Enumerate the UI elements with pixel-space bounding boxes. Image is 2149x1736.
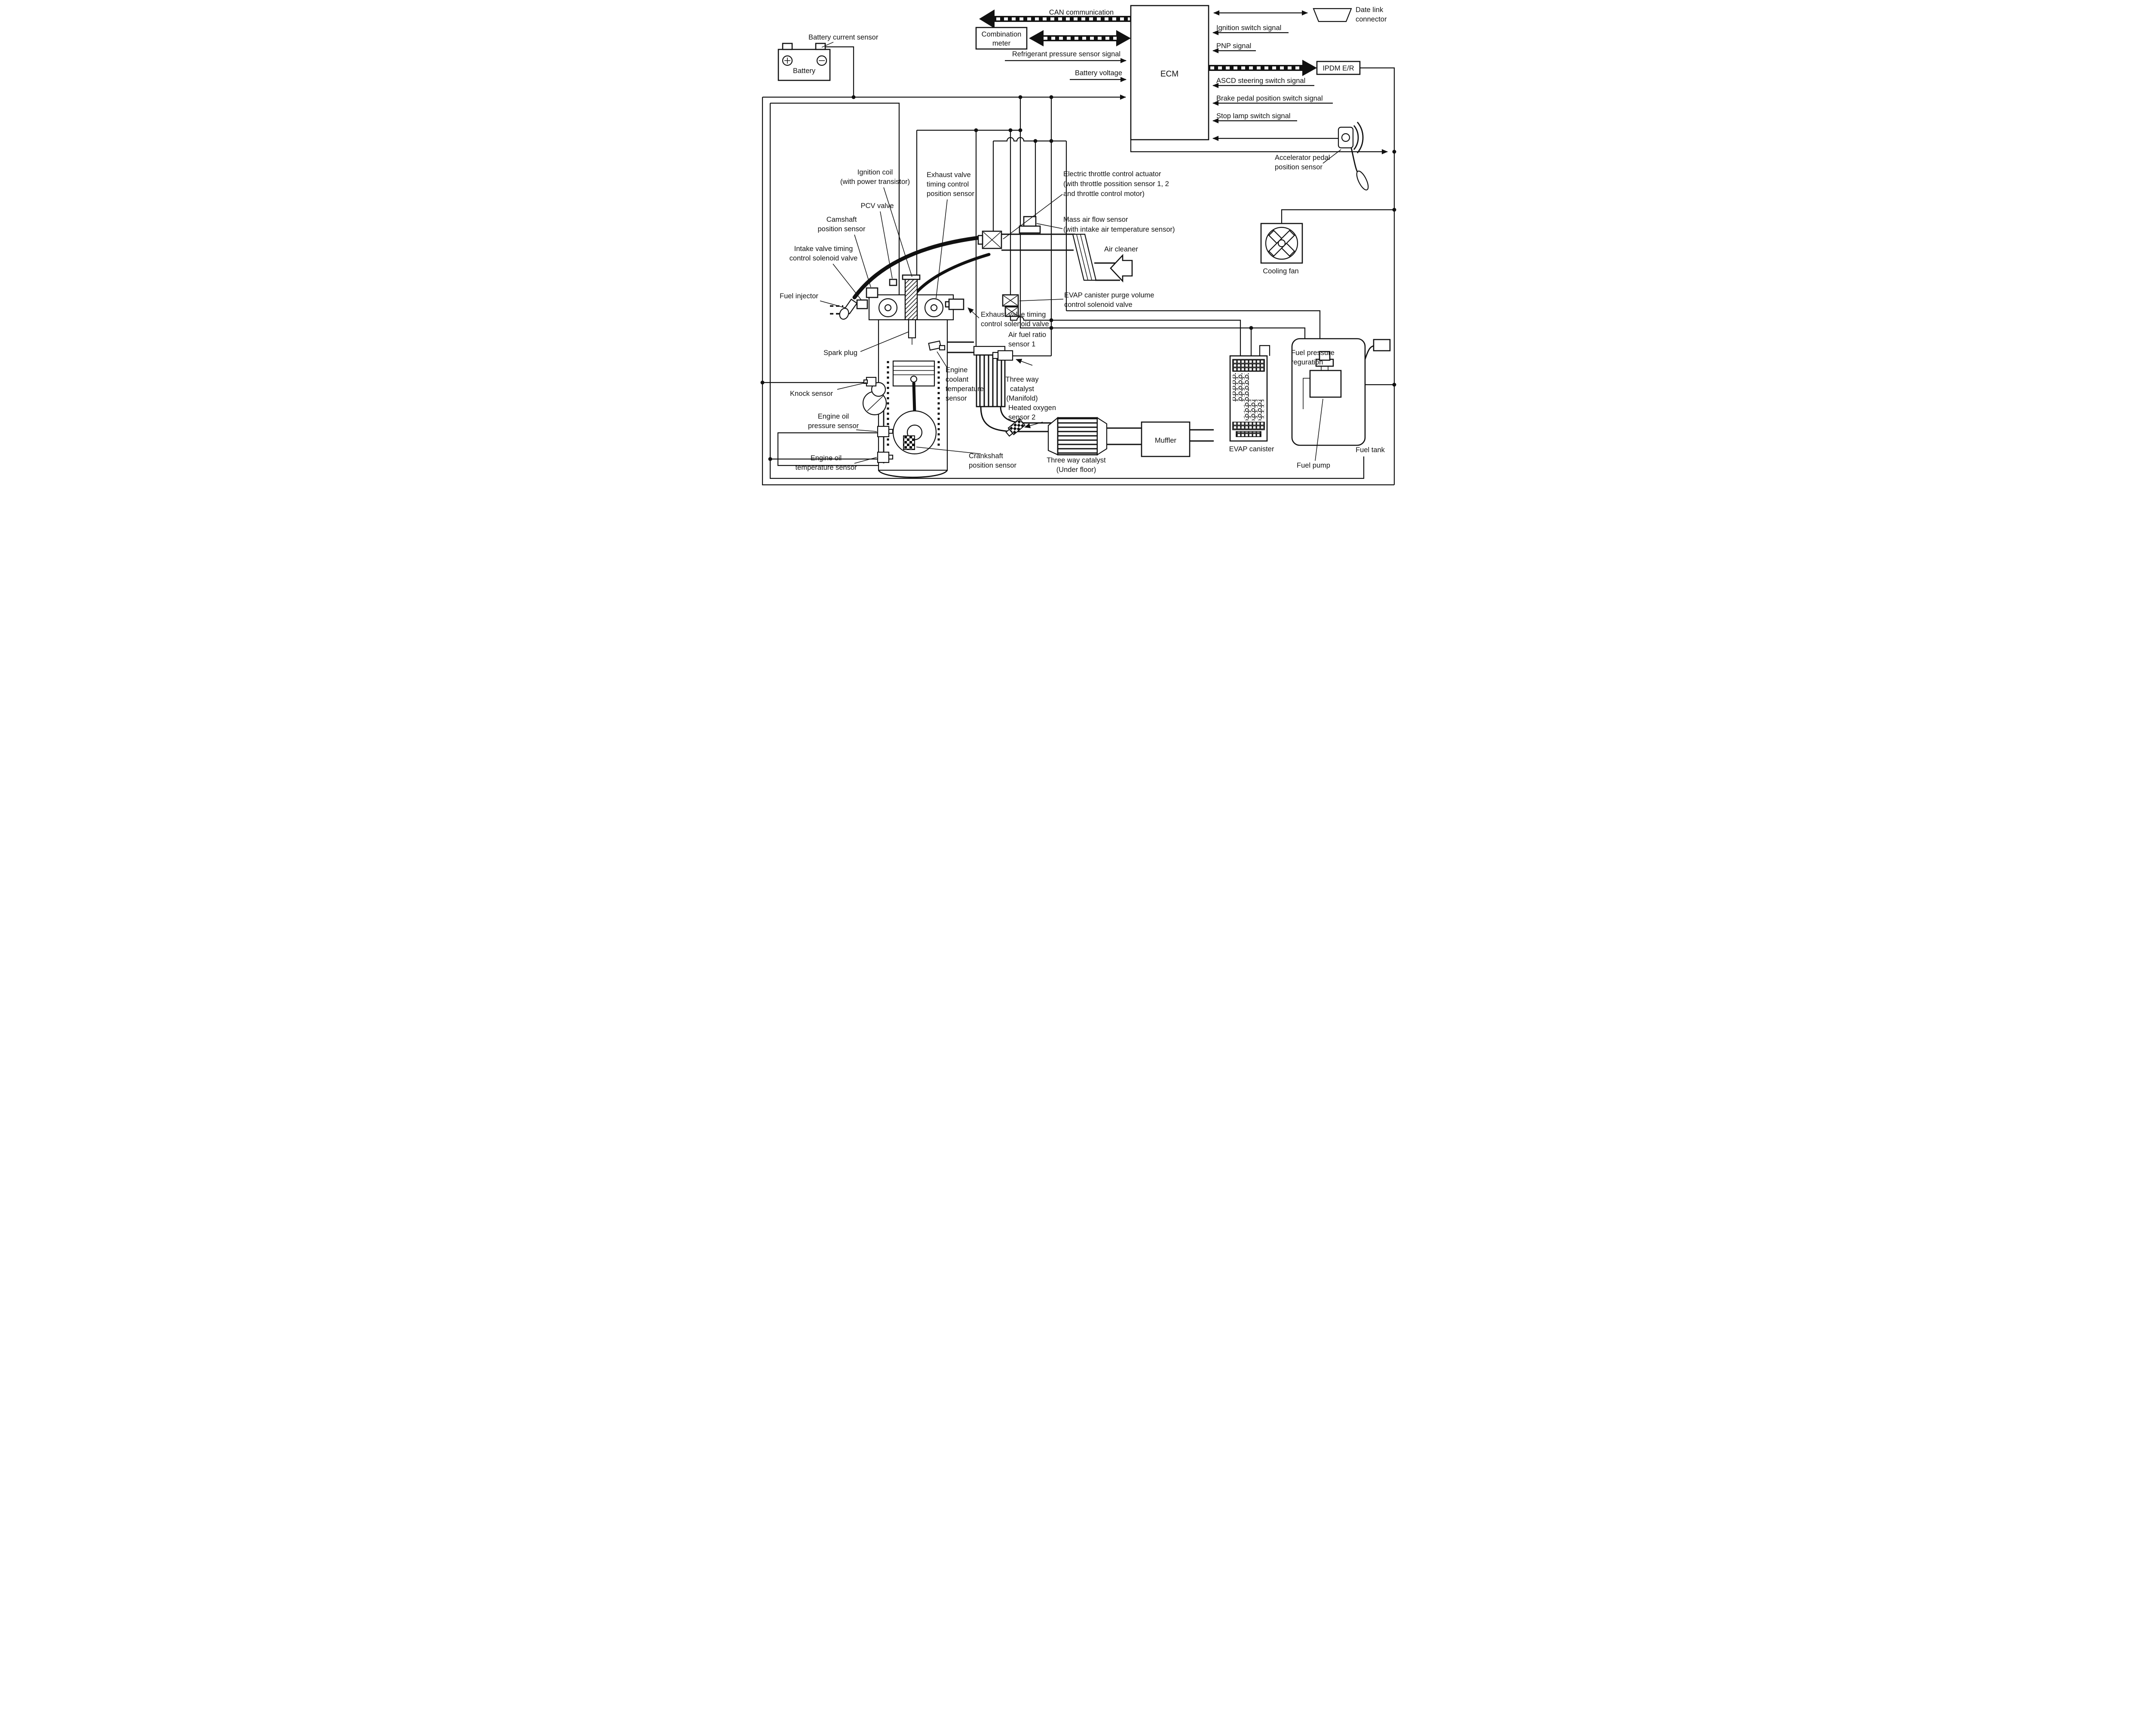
crankshaft-position-sensor-icon xyxy=(903,436,915,450)
wire-feeder-b xyxy=(993,138,1066,141)
ignition-coil-label-1: Ignition coil xyxy=(857,168,893,176)
pcv-valve-icon xyxy=(890,279,897,285)
battery-label: Battery xyxy=(793,67,815,75)
coolant-label-2: coolant xyxy=(946,376,969,383)
battery-current-sensor-label: Battery current sensor xyxy=(808,34,879,41)
fuel-pump-icon xyxy=(1310,370,1341,397)
evap-canister-label: EVAP canister xyxy=(1229,445,1274,453)
date-link-connector-icon xyxy=(1313,9,1351,21)
oil-temp-label-2: temperature sensor xyxy=(795,464,857,472)
three-way-catalyst-manifold-icon xyxy=(977,355,1005,407)
electric-throttle-actuator-icon xyxy=(978,231,1001,248)
ignition-coil-label-2: (with power transistor) xyxy=(840,178,909,186)
ignition-coil-icon xyxy=(905,279,917,320)
oil-pressure-sensor-icon xyxy=(878,426,889,437)
engine-control-system-diagram: ECM Date link connector Ignition switch … xyxy=(742,0,1408,491)
intake-duct xyxy=(854,234,1075,297)
throttle-label-2: (with throttle possition sensor 1, 2 xyxy=(1063,180,1169,188)
ho2-label-1: Heated oxygen xyxy=(1008,404,1056,412)
pipe-fuel-feed xyxy=(1066,311,1320,339)
brake-signal-label: Brake pedal position switch signal xyxy=(1216,95,1323,102)
oil-temp-label-1: Engine oil xyxy=(810,454,841,462)
fuel-injector-label: Fuel injector xyxy=(780,292,818,300)
date-link-label-2: connector xyxy=(1356,15,1387,23)
twc-manifold-label-1: Three way xyxy=(1005,376,1039,383)
fp-reg-label-2: reguration xyxy=(1291,358,1323,366)
coolant-label-1: Engine xyxy=(946,366,967,374)
leader-knock xyxy=(837,383,866,389)
combination-meter-arrow xyxy=(1029,30,1131,46)
fuel-pump-label: Fuel pump xyxy=(1297,462,1330,469)
fp-reg-label-1: Fuel pressure xyxy=(1291,349,1335,357)
stop-lamp-signal-label: Stop lamp switch signal xyxy=(1216,112,1290,120)
pipe-canister-elbow xyxy=(1260,346,1270,356)
exh-pos-label-2: timing control xyxy=(927,181,969,188)
can-communication-label: CAN communication xyxy=(1049,9,1113,16)
twc-underfloor-label-1: Three way catalyst xyxy=(1047,456,1106,464)
maf-label-2: (with intake air temperature sensor) xyxy=(1063,226,1175,233)
leader-intake-valve xyxy=(833,264,861,300)
evap-purge-label-1: EVAP canister purge volume xyxy=(1064,291,1154,299)
engine-illustration xyxy=(830,275,964,478)
pipe-vapor-to-tank xyxy=(1251,328,1305,339)
muffler-label: Muffler xyxy=(1154,437,1176,444)
throttle-label-3: and throttle control motor) xyxy=(1063,190,1145,198)
fuel-tank-label: Fuel tank xyxy=(1356,446,1385,454)
twc-underfloor-label-2: (Under floor) xyxy=(1056,466,1096,474)
exh-sol-label-1: Exhaust valve timing xyxy=(981,311,1046,318)
coolant-label-3: temperature xyxy=(946,385,984,393)
evap-canister-icon xyxy=(1230,356,1267,441)
leader-ignition-coil xyxy=(884,187,912,277)
evap-purge-label-2: control solenoid valve xyxy=(1064,301,1133,309)
oil-pan xyxy=(879,470,947,478)
three-way-catalyst-underfloor-icon xyxy=(1058,418,1097,455)
camshaft-label-2: position sensor xyxy=(817,225,865,233)
date-link-label-1: Date link xyxy=(1356,6,1384,14)
ipdm-arrow xyxy=(1209,60,1317,76)
combination-meter-label-1: Combination xyxy=(981,31,1021,38)
exh-sol-label-2: control solenoid valve xyxy=(981,320,1049,328)
ascd-signal-label: ASCD steering switch signal xyxy=(1216,77,1305,85)
ecm-label: ECM xyxy=(1160,70,1178,79)
combination-meter-label-2: meter xyxy=(992,40,1010,47)
leader-exh-sol xyxy=(968,308,979,318)
air-cleaner-icon xyxy=(1073,234,1120,280)
pcv-valve-label: PCV valve xyxy=(860,202,894,210)
knock-label: Knock sensor xyxy=(790,390,833,398)
twc-manifold-label-3: (Manifold) xyxy=(1006,395,1038,402)
spark-plug-label: Spark plug xyxy=(823,349,857,357)
crank-label-2: position sensor xyxy=(969,462,1016,469)
accelerator-pedal-icon xyxy=(1338,122,1371,192)
pnp-signal-label: PNP signal xyxy=(1216,42,1251,50)
battery-icon xyxy=(778,43,830,80)
airflow-arrow-icon xyxy=(1111,255,1132,281)
knock-sensor-icon xyxy=(866,377,876,386)
cooling-fan-label: Cooling fan xyxy=(1263,267,1298,275)
battery-voltage-label: Battery voltage xyxy=(1074,69,1122,77)
refrigerant-signal-label: Refrigerant pressure sensor signal xyxy=(1012,50,1120,58)
oil-pressure-label-2: pressure sensor xyxy=(808,422,859,430)
accelerator-label-1: Accelerator pedal xyxy=(1275,154,1330,162)
maf-label-1: Mass air flow sensor xyxy=(1063,216,1128,224)
afr-label-2: sensor 1 xyxy=(1008,340,1035,348)
exhaust-valve-timing-solenoid-icon xyxy=(949,299,964,309)
coolant-label-4: sensor xyxy=(946,395,967,402)
leader-evap-purge xyxy=(1019,299,1063,301)
cooling-fan-icon xyxy=(1261,224,1302,263)
afr-label-1: Air fuel ratio xyxy=(1008,331,1046,339)
diagram-canvas: ECM Date link connector Ignition switch … xyxy=(742,0,1408,491)
spark-plug-icon xyxy=(909,320,915,338)
oil-temp-sensor-icon xyxy=(878,452,889,462)
accelerator-label-2: position sensor xyxy=(1275,163,1322,171)
wire-drop-648-lower xyxy=(1020,130,1251,356)
ignition-switch-signal-label: Ignition switch signal xyxy=(1216,24,1281,32)
oil-pressure-label-1: Engine oil xyxy=(817,413,848,420)
intake-valve-timing-solenoid-icon xyxy=(857,300,867,309)
leader-afr xyxy=(1016,359,1032,365)
leader-oil-temp xyxy=(854,457,877,463)
leader-oil-pressure xyxy=(856,430,877,432)
air-cleaner-label: Air cleaner xyxy=(1104,245,1138,253)
ho2-label-2: sensor 2 xyxy=(1008,413,1035,421)
air-fuel-ratio-sensor-icon xyxy=(998,351,1013,360)
camshaft-position-sensor-icon xyxy=(866,288,878,297)
camshaft-label-1: Camshaft xyxy=(826,216,857,224)
leader-exh-pos xyxy=(936,199,947,298)
exh-pos-label-1: Exhaust valve xyxy=(927,171,971,179)
twc-manifold-label-2: catalyst xyxy=(1010,385,1034,393)
intake-valve-label-1: Intake valve timing xyxy=(794,245,853,253)
exh-pos-label-3: position sensor xyxy=(927,190,974,198)
ipdm-label: IPDM E/R xyxy=(1322,64,1354,72)
intake-valve-label-2: control solenoid valve xyxy=(789,254,857,262)
throttle-label-1: Electric throttle control actuator xyxy=(1063,170,1161,178)
